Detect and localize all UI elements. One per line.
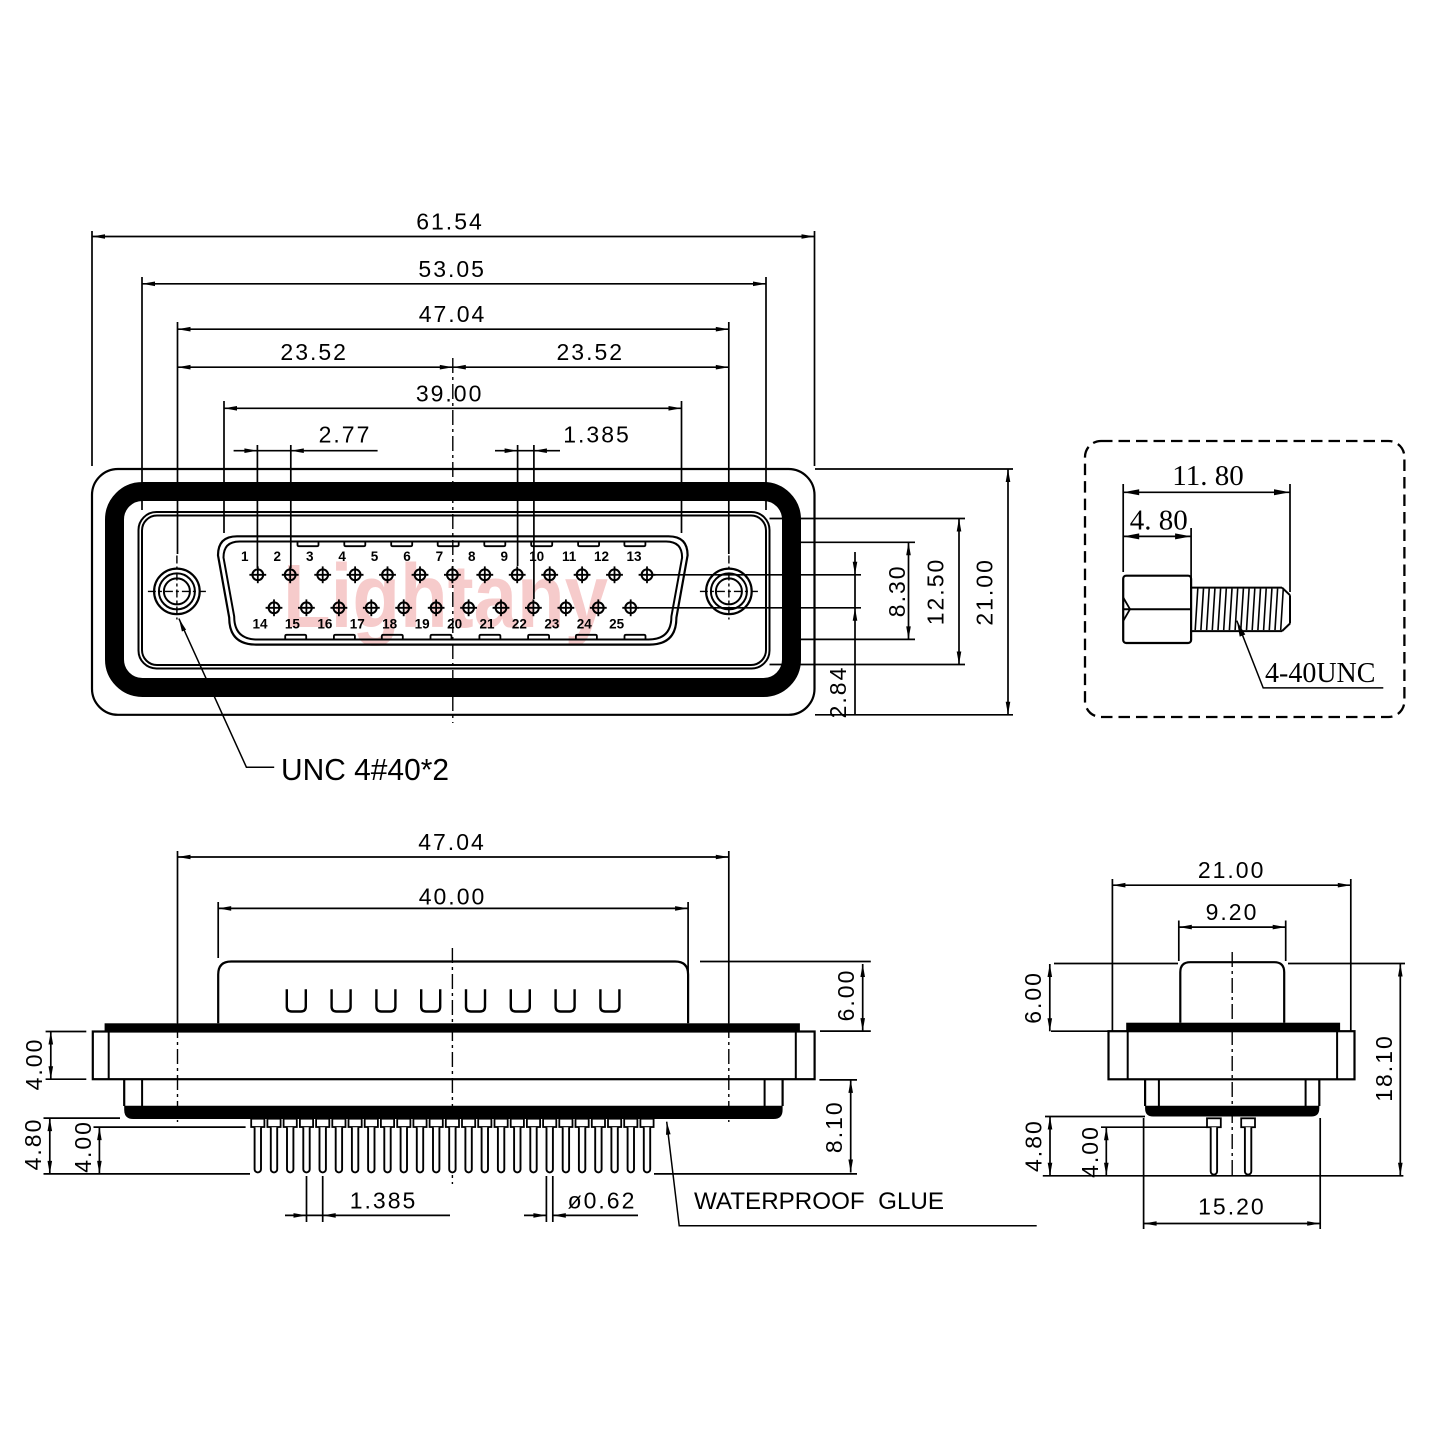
svg-text:25: 25	[609, 616, 625, 631]
svg-text:UNC 4#40*2: UNC 4#40*2	[281, 752, 449, 787]
svg-text:40.00: 40.00	[419, 884, 487, 910]
svg-text:16: 16	[317, 616, 333, 631]
svg-text:4.00: 4.00	[70, 1120, 96, 1173]
svg-text:24: 24	[577, 616, 593, 631]
svg-text:4. 80: 4. 80	[1130, 505, 1188, 537]
svg-text:4: 4	[338, 549, 346, 564]
svg-text:4-40UNC: 4-40UNC	[1265, 658, 1375, 689]
svg-text:21: 21	[479, 616, 495, 631]
svg-text:23: 23	[544, 616, 560, 631]
svg-text:Lightany: Lightany	[283, 547, 608, 647]
svg-text:6.00: 6.00	[1020, 971, 1046, 1024]
svg-text:4.00: 4.00	[21, 1038, 47, 1091]
svg-text:1.385: 1.385	[563, 422, 631, 448]
svg-text:21.00: 21.00	[1198, 857, 1266, 883]
svg-text:15.20: 15.20	[1198, 1194, 1266, 1220]
svg-text:6.00: 6.00	[833, 969, 859, 1022]
svg-text:11. 80: 11. 80	[1172, 460, 1243, 492]
svg-text:47.04: 47.04	[418, 829, 486, 855]
svg-text:18: 18	[382, 616, 398, 631]
svg-text:1.385: 1.385	[350, 1188, 418, 1214]
svg-text:12.50: 12.50	[923, 558, 949, 626]
svg-text:17: 17	[350, 616, 365, 631]
svg-text:8: 8	[468, 549, 476, 564]
svg-text:9: 9	[500, 549, 508, 564]
svg-text:39.00: 39.00	[416, 380, 484, 406]
svg-text:22: 22	[512, 616, 527, 631]
svg-text:7: 7	[436, 549, 444, 564]
svg-text:23.52: 23.52	[557, 339, 625, 365]
svg-text:5: 5	[371, 549, 379, 564]
svg-text:12: 12	[594, 549, 609, 564]
svg-text:61.54: 61.54	[416, 209, 484, 235]
svg-text:53.05: 53.05	[418, 256, 486, 282]
svg-text:2: 2	[273, 549, 281, 564]
svg-text:15: 15	[285, 616, 301, 631]
svg-text:19: 19	[415, 616, 430, 631]
svg-text:4.80: 4.80	[20, 1118, 46, 1171]
svg-text:4.80: 4.80	[1021, 1119, 1047, 1172]
svg-text:WATERPROOF GLUE: WATERPROOF GLUE	[694, 1188, 944, 1215]
svg-text:23.52: 23.52	[280, 339, 348, 365]
svg-text:8.10: 8.10	[821, 1100, 847, 1153]
svg-text:20: 20	[447, 616, 462, 631]
svg-text:6: 6	[403, 549, 411, 564]
svg-text:3: 3	[306, 549, 314, 564]
svg-text:ø0.62: ø0.62	[568, 1188, 637, 1214]
svg-text:9.20: 9.20	[1206, 899, 1259, 925]
svg-text:11: 11	[562, 549, 577, 564]
svg-text:1: 1	[241, 549, 249, 564]
svg-text:14: 14	[252, 616, 268, 631]
svg-text:8.30: 8.30	[884, 564, 910, 617]
svg-text:18.10: 18.10	[1371, 1034, 1397, 1102]
svg-text:47.04: 47.04	[419, 301, 487, 327]
svg-text:4.00: 4.00	[1077, 1125, 1103, 1178]
svg-text:21.00: 21.00	[972, 558, 998, 626]
svg-text:10: 10	[529, 549, 544, 564]
svg-text:2.84: 2.84	[825, 666, 851, 719]
svg-text:13: 13	[626, 549, 642, 564]
svg-text:2.77: 2.77	[319, 422, 372, 448]
